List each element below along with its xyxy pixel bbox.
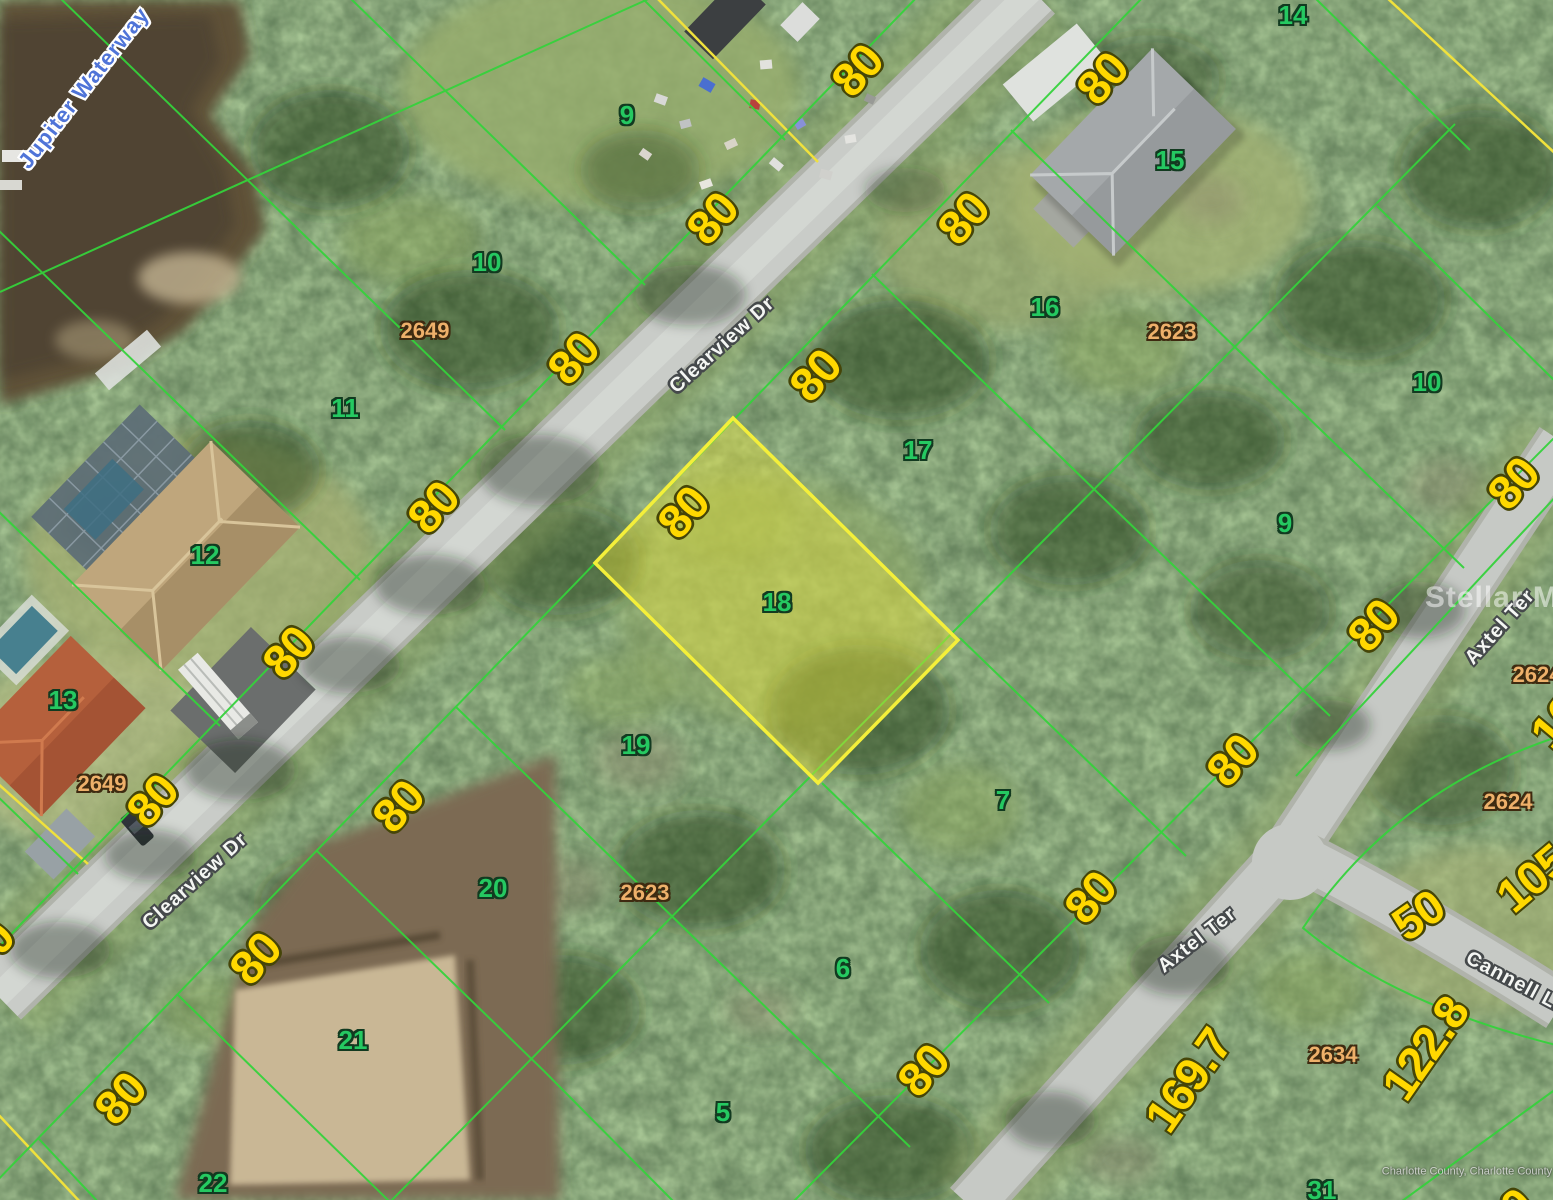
parcel-id-label: 2623: [621, 882, 670, 904]
parcel-id-label: 2624: [1513, 664, 1553, 686]
lot-number-label: 9: [620, 102, 634, 128]
parcel-id-label: 2634: [1309, 1044, 1358, 1066]
street-name-label: Cannell Ln: [1463, 948, 1553, 1018]
dimension-label: 80: [649, 478, 718, 547]
dimension-label: 80: [0, 913, 22, 982]
lot-number-label: 14: [1279, 2, 1308, 28]
lot-number-label: 21: [339, 1027, 368, 1053]
lot-number-label: 7: [996, 787, 1010, 813]
aerial-parcel-map: Jupiter Waterway808080808080808080808080…: [0, 0, 1553, 1200]
lot-number-label: 10: [1413, 369, 1442, 395]
lot-number-label: 13: [49, 687, 78, 713]
lot-number-label: 22: [199, 1170, 228, 1196]
dimension-label: 16: [1522, 688, 1553, 757]
parcel-id-label: 2624: [1484, 791, 1533, 813]
dimension-label: 80: [823, 36, 892, 105]
dimension-label: 80: [364, 772, 433, 841]
parcel-id-label: 2623: [1148, 321, 1197, 343]
dimension-label: 80: [1473, 1180, 1542, 1200]
dimension-label: 80: [781, 341, 850, 410]
dimension-label: 80: [221, 924, 290, 993]
lot-number-label: 12: [191, 542, 220, 568]
lot-number-label: 18: [763, 589, 792, 615]
dimension-label: 122.8: [1373, 988, 1476, 1107]
parcel-id-label: 2649: [78, 773, 127, 795]
lot-number-label: 16: [1031, 294, 1060, 320]
lot-number-label: 6: [836, 955, 850, 981]
street-name-label: Clearview Dr: [139, 829, 251, 933]
watermark: Stellar MLS: [1425, 583, 1553, 613]
lot-number-label: 19: [622, 732, 651, 758]
dimension-label: 80: [1068, 44, 1137, 113]
dimension-label: 80: [118, 766, 187, 835]
lot-number-label: 5: [716, 1099, 730, 1125]
dimension-label: 80: [1339, 591, 1408, 660]
dimension-label: 80: [399, 473, 468, 542]
parcel-id-label: 2649: [401, 320, 450, 342]
dimension-label: 80: [678, 184, 747, 253]
lot-number-label: 11: [331, 395, 359, 421]
dimension-label: 80: [254, 618, 323, 687]
lot-number-label: 17: [904, 437, 933, 463]
labels-layer: Jupiter Waterway808080808080808080808080…: [0, 0, 1553, 1200]
attribution-text: Charlotte County, Charlotte County GIS: [1382, 1167, 1553, 1178]
lot-number-label: 9: [1278, 510, 1292, 536]
lot-number-label: 15: [1156, 147, 1185, 173]
dimension-label: 50: [1384, 881, 1452, 948]
dimension-label: 105: [1488, 836, 1553, 920]
dimension-label: 80: [1056, 863, 1125, 932]
dimension-label: 80: [86, 1064, 155, 1133]
dimension-label: 80: [889, 1036, 958, 1105]
waterway-label: Jupiter Waterway: [15, 3, 154, 172]
street-name-label: Clearview Dr: [666, 293, 778, 397]
street-name-label: Axtel Ter: [1154, 903, 1240, 976]
dimension-label: 80: [1479, 449, 1548, 518]
lot-number-label: 10: [473, 249, 502, 275]
dimension-label: 80: [1198, 726, 1267, 795]
dimension-label: 80: [929, 184, 998, 253]
dimension-label: 169.7: [1136, 1020, 1239, 1139]
dimension-label: 80: [539, 324, 608, 393]
lot-number-label: 20: [479, 875, 508, 901]
lot-number-label: 31: [1308, 1177, 1337, 1200]
